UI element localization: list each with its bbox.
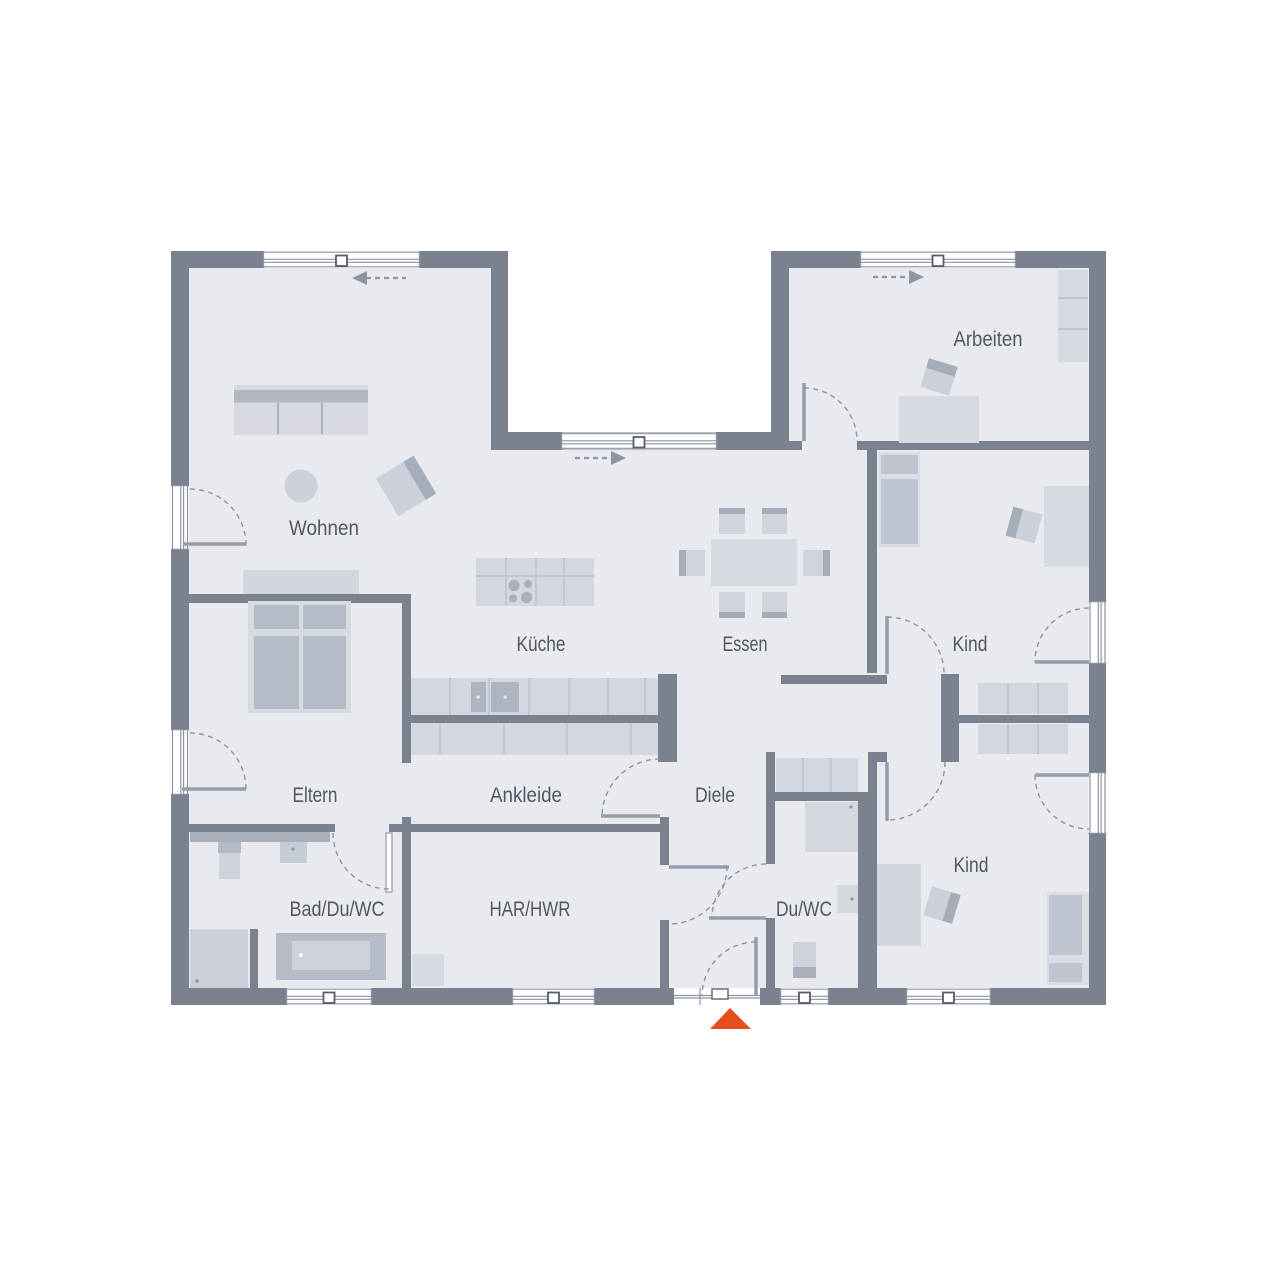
svg-text:Kind: Kind [953,633,988,656]
svg-text:Ankleide: Ankleide [490,784,562,807]
svg-text:Bad/Du/WC: Bad/Du/WC [290,898,385,921]
svg-text:HAR/HWR: HAR/HWR [490,898,571,921]
svg-text:Diele: Diele [695,784,735,807]
svg-text:Kind: Kind [954,854,989,877]
svg-text:Du/WC: Du/WC [776,898,832,921]
svg-text:Essen: Essen [723,633,768,656]
svg-text:Arbeiten: Arbeiten [954,328,1023,351]
svg-text:Küche: Küche [517,633,566,656]
svg-text:Wohnen: Wohnen [289,517,359,540]
svg-text:Eltern: Eltern [293,784,338,807]
